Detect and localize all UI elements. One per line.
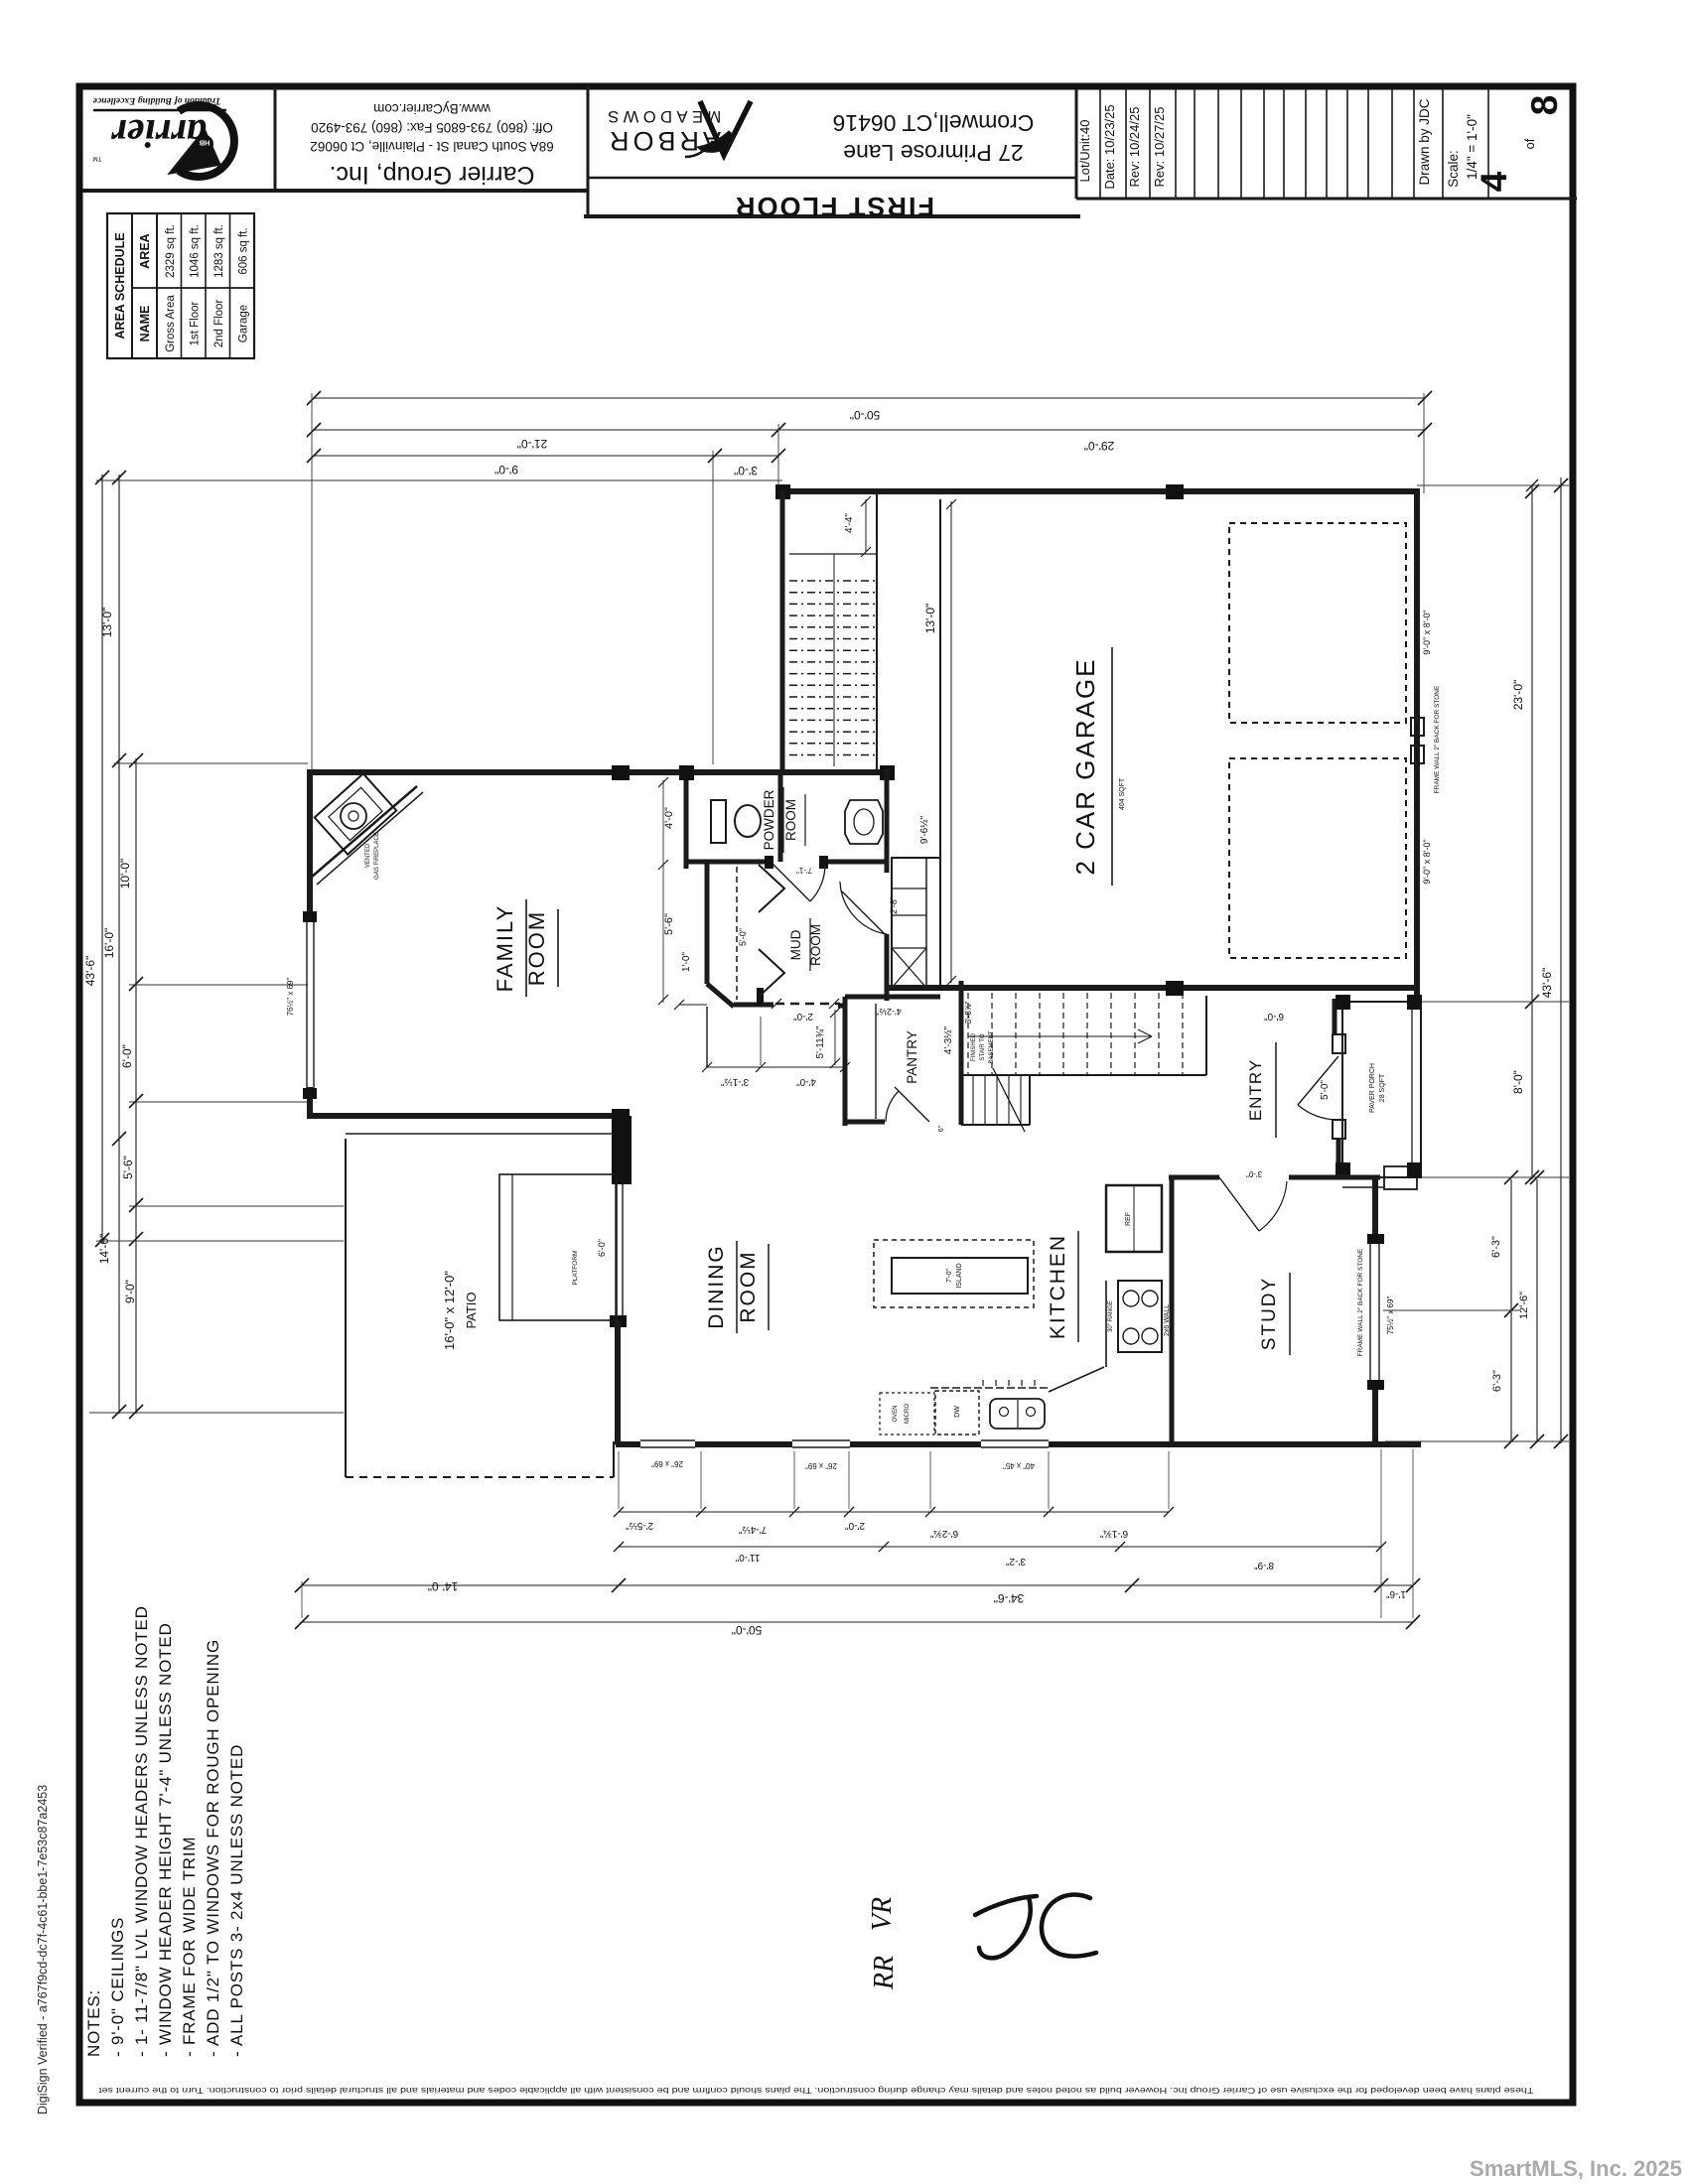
- svg-text:6'-3": 6'-3": [1490, 1236, 1502, 1258]
- svg-text:1'-6": 1'-6": [1386, 1588, 1406, 1599]
- svg-text:43'-6": 43'-6": [1540, 968, 1554, 999]
- svg-text:VR: VR: [867, 1897, 898, 1931]
- svg-text:ROOM: ROOM: [524, 910, 549, 986]
- svg-text:ARBOR: ARBOR: [606, 126, 721, 156]
- svg-text:ROOM: ROOM: [783, 799, 798, 841]
- svg-text:Drawn by JDC: Drawn by JDC: [1417, 98, 1432, 185]
- svg-text:40" x 45": 40" x 45": [1003, 1461, 1035, 1470]
- svg-text:PLATFORM: PLATFORM: [572, 1251, 579, 1286]
- svg-text:6'-0": 6'-0": [597, 1239, 607, 1257]
- svg-text:DigiSign Verified - a767f9cd-d: DigiSign Verified - a767f9cd-dc7f-4c61-b…: [36, 1785, 50, 2115]
- svg-text:AREA SCHEDULE: AREA SCHEDULE: [113, 232, 127, 339]
- svg-text:MICRO: MICRO: [905, 1404, 911, 1424]
- svg-text:6": 6": [938, 1125, 945, 1132]
- svg-text:43'-6": 43'-6": [83, 956, 97, 987]
- svg-text:404 SQFT: 404 SQFT: [1119, 777, 1126, 810]
- svg-text:10'-0": 10'-0": [118, 859, 132, 889]
- svg-text:STAIR TO: STAIR TO: [980, 1033, 986, 1060]
- svg-text:2'-8": 2'-8": [889, 896, 899, 914]
- svg-text:16'-0" x 12'-0": 16'-0" x 12'-0": [442, 1271, 457, 1350]
- svg-text:21'-0": 21'-0": [517, 437, 548, 451]
- svg-text:2 CAR GARAGE: 2 CAR GARAGE: [1070, 657, 1100, 875]
- svg-text:arrier: arrier: [111, 111, 207, 156]
- svg-text:STUDY: STUDY: [1259, 1277, 1280, 1350]
- svg-text:3'-2": 3'-2": [1006, 1556, 1026, 1567]
- svg-text:ROOM: ROOM: [737, 1250, 760, 1322]
- svg-text:Tradition of Building Excellen: Tradition of Building Excellence: [92, 95, 220, 105]
- svg-text:6'-0": 6'-0": [120, 1044, 134, 1068]
- svg-text:3'-0": 3'-0": [1246, 1169, 1262, 1178]
- svg-text:26" x 69": 26" x 69": [651, 1459, 683, 1468]
- svg-text:Lot/Unit:40: Lot/Unit:40: [1077, 120, 1092, 183]
- svg-text:1'-0": 1'-0": [681, 952, 692, 972]
- svg-text:5'-0": 5'-0": [738, 928, 748, 946]
- svg-text:4: 4: [1474, 171, 1514, 192]
- svg-text:76½" x 69": 76½" x 69": [286, 978, 295, 1017]
- svg-text:OVEN: OVEN: [893, 1405, 899, 1422]
- svg-text:6'-3": 6'-3": [1491, 1370, 1503, 1392]
- svg-text:FRAME WALL 2" BACK FOR STONE: FRAME WALL 2" BACK FOR STONE: [1434, 685, 1441, 793]
- svg-text:SmartMLS, Inc. 2025: SmartMLS, Inc. 2025: [1470, 2156, 1682, 2181]
- svg-text:9'-0" x 8'-0": 9'-0" x 8'-0": [1422, 839, 1432, 884]
- svg-text:Date: 10/23/25: Date: 10/23/25: [1102, 104, 1117, 189]
- svg-text:RR: RR: [869, 1956, 900, 1990]
- svg-text:16'-0": 16'-0": [102, 928, 116, 959]
- svg-text:6'-1¾": 6'-1¾": [1099, 1528, 1128, 1539]
- svg-text:2329 sq ft.: 2329 sq ft.: [165, 224, 177, 278]
- svg-text:PAVER PORCH: PAVER PORCH: [1369, 1063, 1376, 1113]
- svg-text:2'-0": 2'-0": [793, 1011, 813, 1022]
- svg-text:1st Floor: 1st Floor: [190, 301, 202, 345]
- svg-text:of: of: [1522, 138, 1537, 149]
- svg-text:50'-0": 50'-0": [850, 408, 881, 422]
- svg-text:1046 sq ft.: 1046 sq ft.: [190, 224, 202, 278]
- svg-text:6'-2¾": 6'-2¾": [929, 1528, 958, 1539]
- svg-text:- WINDOW HEADER HEIGHT 7'-4" U: - WINDOW HEADER HEIGHT 7'-4" UNLESS NOTE…: [156, 1622, 175, 2057]
- svg-text:Rev: 10/24/25: Rev: 10/24/25: [1127, 107, 1142, 188]
- svg-text:- ADD 1/2" TO WINDOWS FOR ROUG: - ADD 1/2" TO WINDOWS FOR ROUGH OPENING: [204, 1639, 222, 2057]
- svg-text:TM: TM: [93, 155, 102, 161]
- svg-text:13'-0": 13'-0": [923, 604, 937, 634]
- svg-text:11'-0": 11'-0": [735, 1552, 760, 1563]
- svg-text:7'-1": 7'-1": [796, 866, 812, 875]
- svg-text:68A South Canal St - Plainvill: 68A South Canal St - Plainville, Ct 0606…: [310, 139, 553, 154]
- svg-text:34'-6": 34'-6": [994, 1591, 1025, 1605]
- svg-text:FAMILY: FAMILY: [492, 904, 517, 993]
- svg-text:- ALL POSTS 3- 2x4 UNLESS NOTE: - ALL POSTS 3- 2x4 UNLESS NOTED: [227, 1744, 246, 2057]
- svg-text:Off: (860) 793-6805 Fax: (860: Off: (860) 793-6805 Fax: (860) 793-4920: [311, 120, 553, 135]
- svg-text:FIRST FLOOR: FIRST FLOOR: [734, 192, 934, 221]
- svg-text:ISLAND: ISLAND: [956, 1263, 963, 1288]
- svg-text:3'-8⅞": 3'-8⅞": [964, 1002, 973, 1024]
- svg-text:26" x 69": 26" x 69": [805, 1461, 837, 1470]
- svg-text:Cromwell,CT 06416: Cromwell,CT 06416: [833, 110, 1035, 136]
- svg-text:28 SQFT: 28 SQFT: [1379, 1073, 1386, 1102]
- svg-text:30" RANGE: 30" RANGE: [1108, 1300, 1114, 1332]
- svg-text:6'-0": 6'-0": [1264, 1011, 1284, 1022]
- svg-text:- 1- 11-7/8" LVL WINDOW HEADER: - 1- 11-7/8" LVL WINDOW HEADERS UNLESS N…: [132, 1605, 151, 2057]
- svg-text:BASEMENT: BASEMENT: [989, 1030, 995, 1063]
- svg-text:FRAME WALL 2" BACK FOR STONE: FRAME WALL 2" BACK FOR STONE: [1357, 1248, 1364, 1356]
- svg-text:9'-0" x 8'-0": 9'-0" x 8'-0": [1422, 610, 1432, 654]
- svg-text:3'-0": 3'-0": [734, 464, 758, 478]
- svg-text:MEADOWS: MEADOWS: [604, 107, 722, 125]
- svg-text:2'-0": 2'-0": [845, 1520, 865, 1531]
- svg-text:NOTES:: NOTES:: [84, 1989, 103, 2057]
- svg-text:- FRAME FOR WIDE TRIM: - FRAME FOR WIDE TRIM: [180, 1837, 199, 2057]
- svg-text:2'-5½": 2'-5½": [625, 1520, 653, 1531]
- svg-text:1/4" = 1'-0": 1/4" = 1'-0": [1465, 114, 1479, 180]
- svg-text:75½" x 69": 75½" x 69": [1386, 1297, 1395, 1335]
- svg-text:4'-3½": 4'-3½": [943, 1025, 954, 1054]
- svg-text:23'-0": 23'-0": [1511, 680, 1525, 711]
- svg-text:7'-4½": 7'-4½": [738, 1524, 767, 1535]
- svg-text:12'-6": 12'-6": [1518, 1292, 1530, 1319]
- svg-text:3'-1½": 3'-1½": [720, 1076, 749, 1087]
- svg-text:These plans have been develope: These plans have been developed for the …: [98, 2086, 1534, 2096]
- svg-text:5'-6": 5'-6": [121, 1156, 135, 1179]
- svg-text:KITCHEN: KITCHEN: [1047, 1234, 1069, 1339]
- svg-text:5'-11¾": 5'-11¾": [815, 1025, 826, 1059]
- svg-text:9'-0": 9'-0": [123, 1280, 137, 1303]
- svg-text:Scale:: Scale:: [1446, 150, 1461, 188]
- svg-text:14'-6": 14'-6": [97, 1234, 111, 1265]
- svg-text:GAS FIREPLACE: GAS FIREPLACE: [374, 832, 380, 880]
- svg-text:Garage: Garage: [238, 305, 250, 342]
- svg-text:AREA: AREA: [138, 233, 152, 268]
- svg-text:DW: DW: [954, 1406, 961, 1418]
- svg-text:ENTRY: ENTRY: [1246, 1059, 1265, 1121]
- svg-text:27 Primrose Lane: 27 Primrose Lane: [843, 140, 1024, 166]
- svg-text:DINING: DINING: [705, 1244, 728, 1329]
- svg-text:8'-9": 8'-9": [1254, 1560, 1274, 1570]
- svg-text:7'-0": 7'-0": [946, 1269, 953, 1283]
- svg-text:5'-6": 5'-6": [663, 913, 675, 935]
- svg-text:NAME: NAME: [138, 306, 152, 342]
- svg-text:2nd Floor: 2nd Floor: [213, 300, 225, 348]
- svg-text:FINISHED: FINISHED: [971, 1032, 977, 1061]
- svg-text:4'-0": 4'-0": [796, 1076, 816, 1087]
- svg-text:8: 8: [1524, 95, 1565, 116]
- svg-text:Carrier Group, Inc.: Carrier Group, Inc.: [329, 161, 534, 189]
- svg-text:13'-0": 13'-0": [100, 608, 114, 638]
- svg-text:VENTED: VENTED: [365, 843, 371, 868]
- svg-text:www.ByCarrier.com: www.ByCarrier.com: [373, 101, 492, 116]
- svg-text:29'-0": 29'-0": [1084, 439, 1115, 453]
- svg-text:606 sq ft.: 606 sq ft.: [238, 227, 250, 274]
- svg-text:MUD: MUD: [788, 929, 803, 960]
- svg-text:14'-0": 14'-0": [428, 1579, 459, 1593]
- svg-text:1283 sq ft.: 1283 sq ft.: [213, 224, 225, 278]
- svg-text:50'-0": 50'-0": [732, 1623, 763, 1637]
- svg-text:4'-2½": 4'-2½": [876, 1007, 901, 1017]
- svg-text:PANTRY: PANTRY: [905, 1030, 919, 1084]
- svg-text:5'-0": 5'-0": [1320, 1080, 1331, 1100]
- svg-text:REF: REF: [1125, 1212, 1132, 1226]
- svg-text:9'-0": 9'-0": [494, 463, 518, 477]
- svg-text:8'-0": 8'-0": [1511, 1070, 1525, 1094]
- svg-text:9'-6½": 9'-6½": [919, 815, 930, 844]
- svg-text:PATIO: PATIO: [464, 1292, 479, 1328]
- svg-text:- 9'-0" CEILINGS: - 9'-0" CEILINGS: [108, 1917, 127, 2057]
- svg-text:Gross Area: Gross Area: [165, 295, 177, 352]
- svg-text:Rev: 10/27/25: Rev: 10/27/25: [1152, 107, 1167, 188]
- svg-text:4'-4": 4'-4": [844, 513, 855, 533]
- svg-text:POWDER: POWDER: [762, 789, 776, 850]
- svg-text:4'-0": 4'-0": [663, 807, 675, 829]
